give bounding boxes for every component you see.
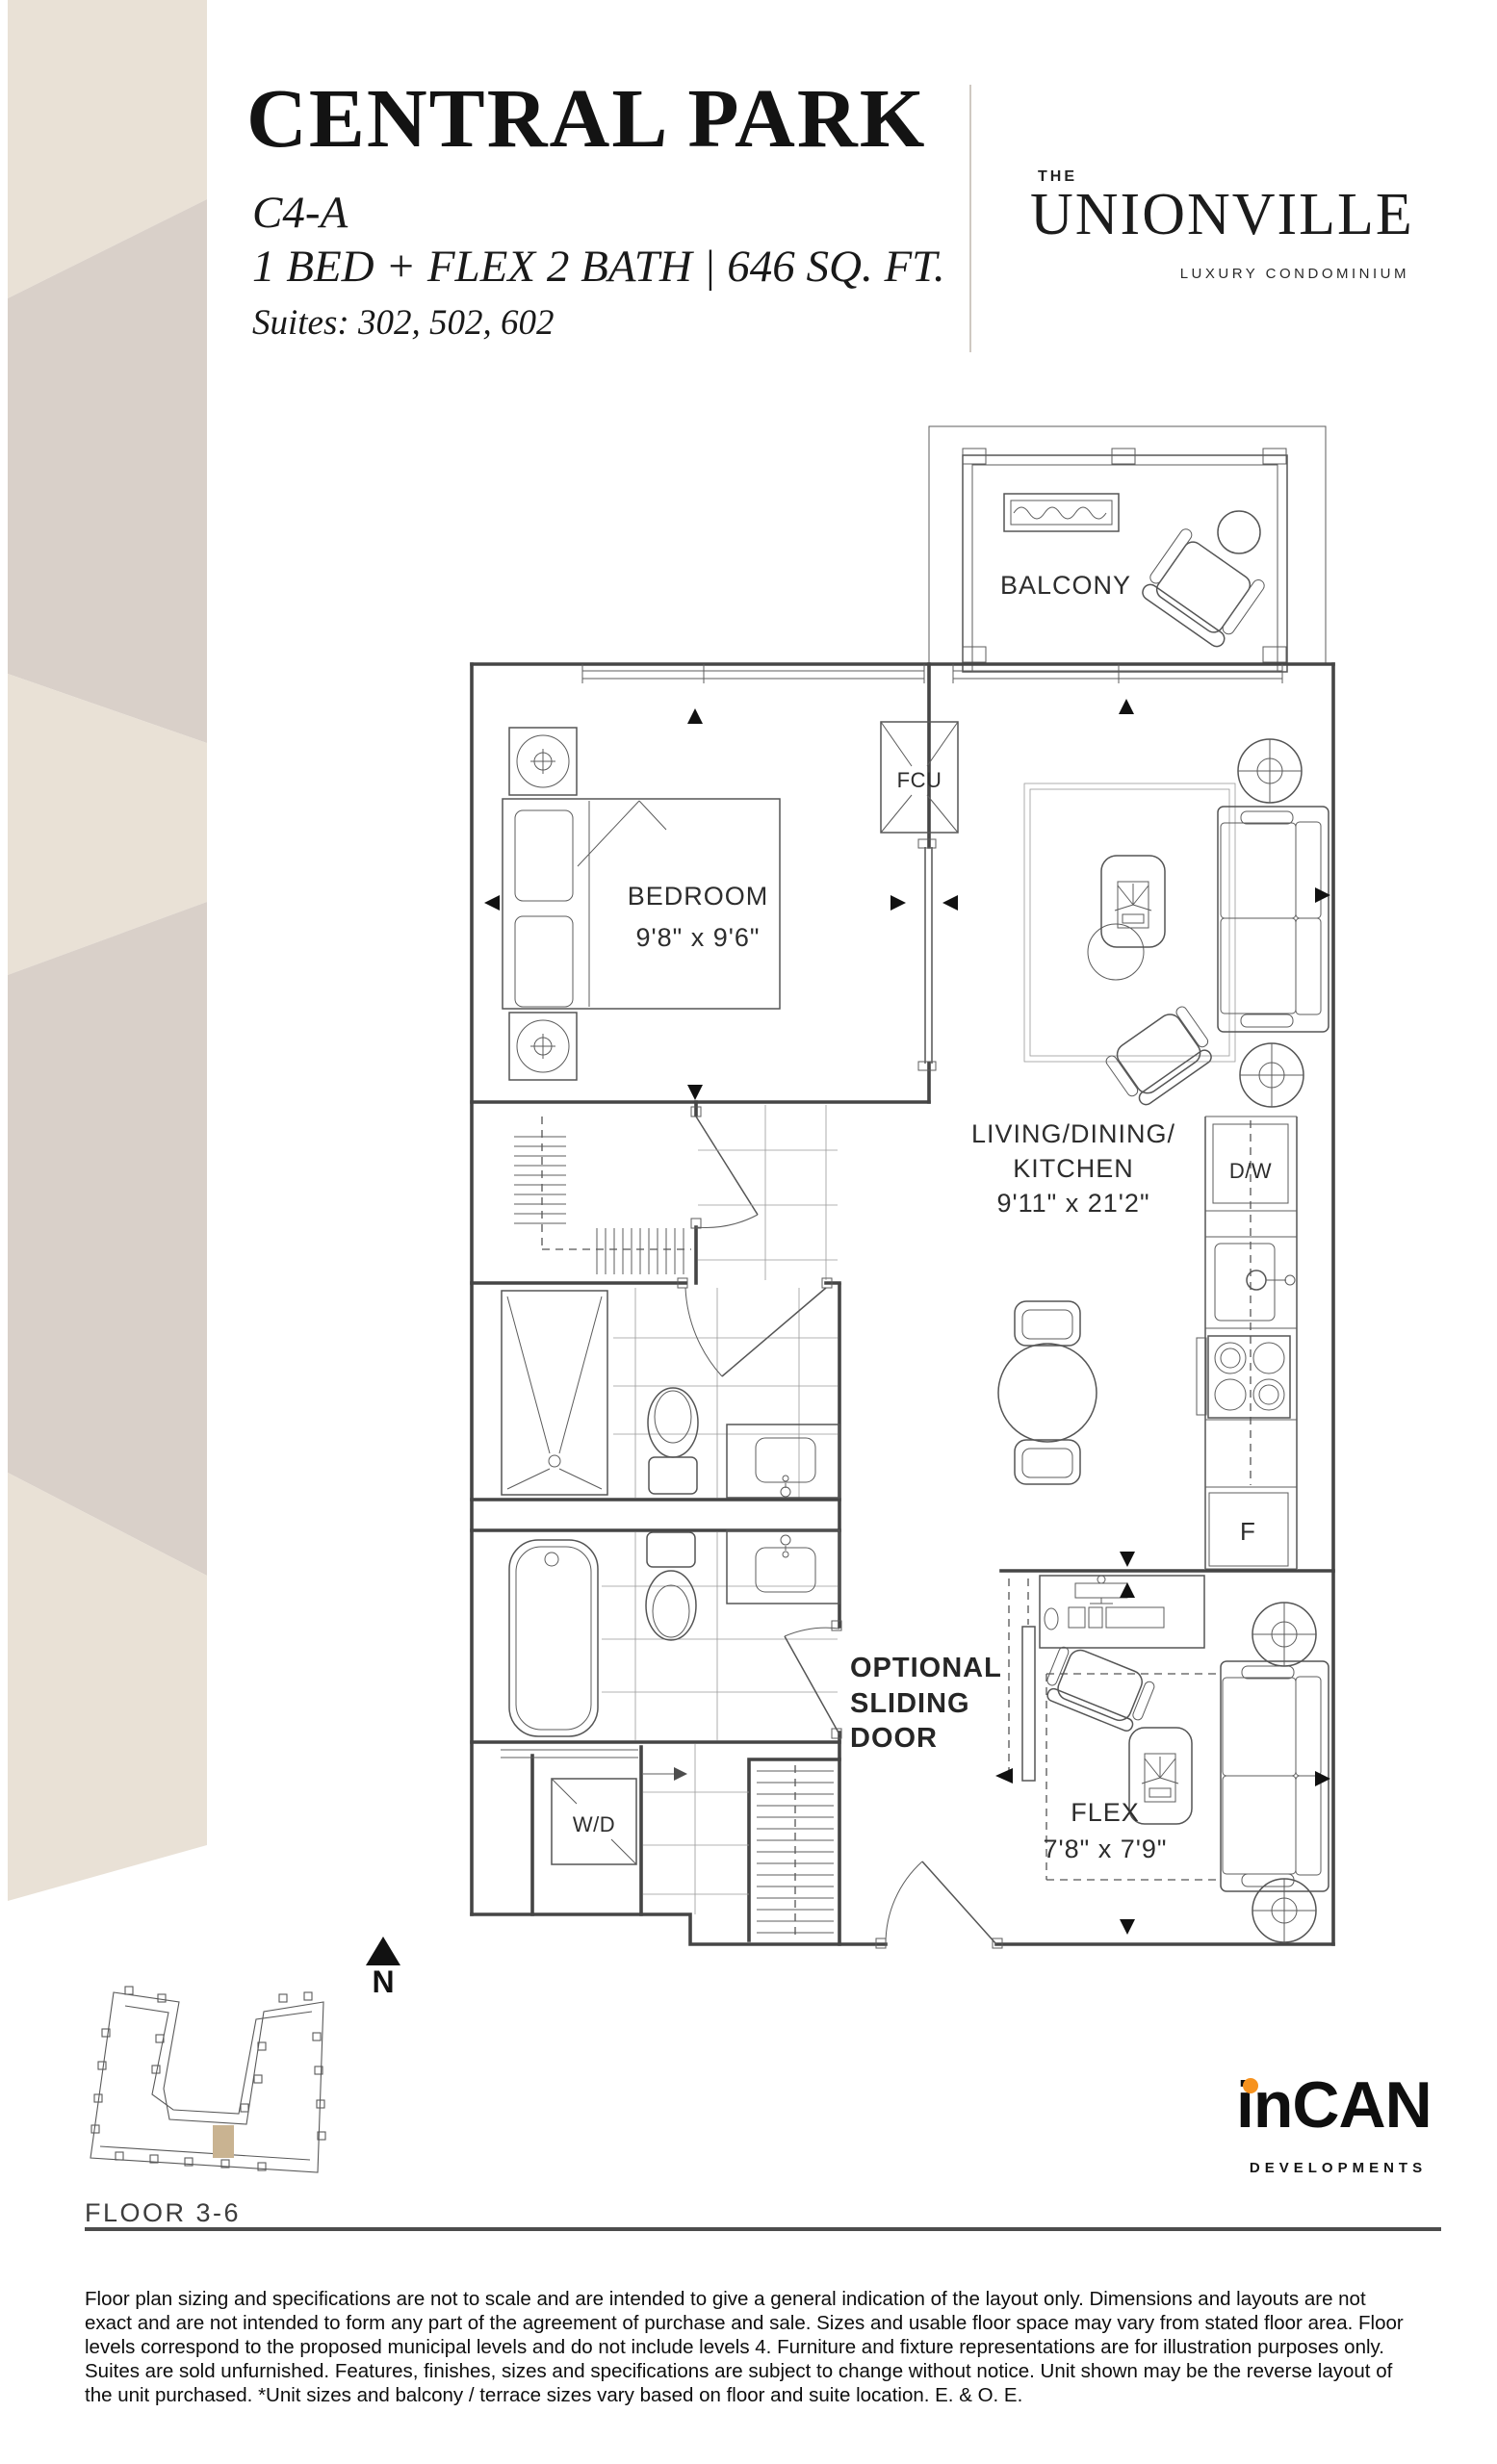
- coffee-table-plant: [1088, 856, 1165, 980]
- key-plan: [77, 1975, 335, 2194]
- floor-range-label: FLOOR 3-6: [85, 2198, 241, 2228]
- north-arrow-icon: [366, 1937, 400, 1965]
- nightstand-lamp: [509, 1013, 577, 1080]
- cooktop: [1197, 1336, 1290, 1418]
- side-table: [1240, 1043, 1303, 1107]
- windows: [582, 664, 1282, 683]
- washer-dryer: W/D: [501, 1750, 638, 1864]
- living-label-1: LIVING/DINING/: [971, 1119, 1175, 1148]
- walkin-closet: [514, 1107, 758, 1274]
- brand-name: UNIONVILLE: [1030, 181, 1414, 249]
- sliding-label-2: SLIDING: [850, 1688, 970, 1719]
- sofa: [1218, 807, 1329, 1032]
- entry: [643, 1744, 1002, 1948]
- sliding-label-3: DOOR: [850, 1723, 938, 1754]
- wd-label: W/D: [573, 1812, 615, 1836]
- highlighted-suite: [213, 2125, 234, 2158]
- brand-tagline: LUXURY CONDOMINIUM: [1032, 266, 1409, 282]
- living-label-2: KITCHEN: [1013, 1154, 1134, 1183]
- optional-sliding-door: OPTIONAL SLIDING DOOR: [850, 1578, 1035, 1784]
- floor-plan: BALCONY FCU: [462, 414, 1357, 2002]
- north-arrow: N: [358, 1935, 408, 1996]
- balcony-lounge-chair: [1138, 526, 1266, 650]
- footer-divider: [85, 2227, 1441, 2231]
- living-dims: 9'11" x 21'2": [996, 1189, 1149, 1218]
- unit-specs: 1 BED + FLEX 2 BATH | 646 SQ. FT.: [252, 241, 945, 293]
- sliding-label-1: OPTIONAL: [850, 1653, 1002, 1683]
- side-table: [1252, 1603, 1316, 1666]
- vanity-sink: [727, 1424, 839, 1498]
- header-divider: [969, 85, 971, 352]
- desk: [1040, 1576, 1204, 1648]
- kitchen-sink: [1215, 1244, 1295, 1321]
- flex-room: FLEX 7'8" x 7'9": [1040, 1576, 1329, 1942]
- bathroom-2: [509, 1530, 841, 1740]
- decorative-side-band: [8, 0, 207, 1901]
- dw-label: D/W: [1229, 1159, 1272, 1183]
- flex-dims: 7'8" x 7'9": [1043, 1835, 1167, 1863]
- vanity-sink: [727, 1530, 839, 1604]
- kitchen: D/W F: [1197, 1116, 1297, 1569]
- armchair: [1103, 1003, 1219, 1110]
- balcony: BALCONY: [929, 426, 1326, 672]
- unit-code: C4-A: [252, 187, 348, 239]
- bedroom-dims: 9'8" x 9'6": [635, 923, 760, 952]
- developer-logo: inCAN: [1236, 2067, 1432, 2143]
- side-table: [1238, 739, 1302, 803]
- living-room: LIVING/DINING/ KITCHEN 9'11" x 21'2": [971, 739, 1329, 1218]
- bedroom-label: BEDROOM: [628, 882, 769, 911]
- hall-tiles: [698, 1105, 838, 1280]
- flex-label: FLEX: [1071, 1798, 1140, 1827]
- incan-logo-dot-icon: [1243, 2078, 1258, 2093]
- bathroom-1: [502, 1278, 839, 1498]
- sofa: [1221, 1661, 1329, 1891]
- bedroom: BEDROOM 9'8" x 9'6": [503, 728, 936, 1080]
- fridge-label: F: [1240, 1517, 1255, 1546]
- fcu-label: FCU: [897, 768, 942, 792]
- disclaimer-text: Floor plan sizing and specifications are…: [85, 2287, 1415, 2407]
- page-title: CENTRAL PARK: [246, 69, 926, 167]
- suites-list: Suites: 302, 502, 602: [252, 302, 554, 344]
- balcony-table: [1218, 511, 1260, 553]
- toilet: [648, 1388, 698, 1494]
- shower: [502, 1291, 607, 1495]
- north-label: N: [372, 1964, 394, 1996]
- balcony-label: BALCONY: [1000, 571, 1131, 600]
- fcu-closet: FCU: [881, 722, 958, 833]
- office-chair: [1041, 1642, 1157, 1734]
- nightstand-lamp: [509, 728, 577, 795]
- dining: [998, 1301, 1097, 1484]
- bathtub: [509, 1540, 598, 1736]
- floorplan-page: { "header": { "title": "CENTRAL PARK", "…: [0, 0, 1497, 2464]
- developer-tagline: DEVELOPMENTS: [1236, 2160, 1440, 2176]
- planter-box: [1004, 494, 1119, 531]
- fridge: F: [1209, 1493, 1288, 1566]
- side-table: [1252, 1879, 1316, 1942]
